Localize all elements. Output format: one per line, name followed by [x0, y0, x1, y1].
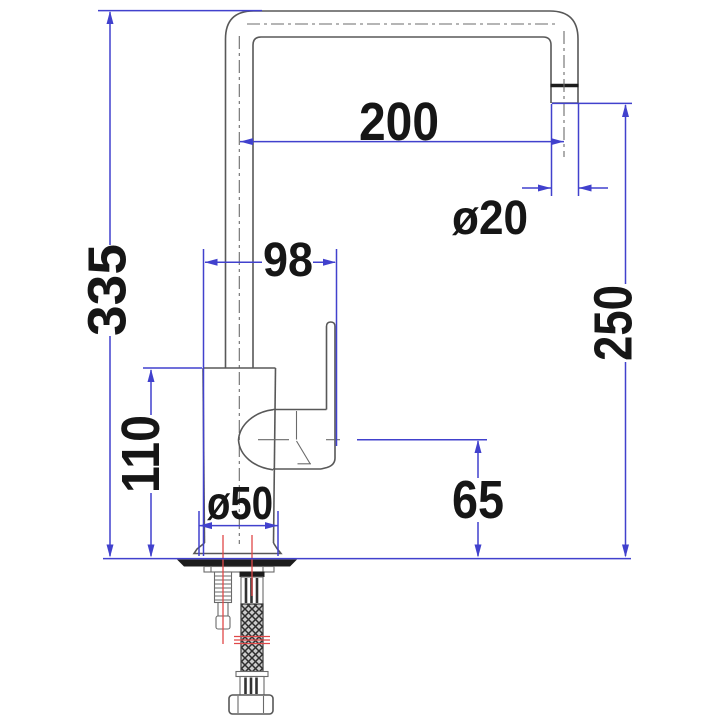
base-flare: [194, 543, 281, 554]
dim-110-label: 110: [111, 415, 171, 493]
dim-200-label: 200: [359, 92, 439, 152]
dimension-outlet-height: 250: [552, 103, 643, 557]
dim-o20-label: ø20: [452, 192, 528, 245]
dimension-outlet-diameter: ø20: [452, 104, 608, 245]
mounting-flange: [204, 567, 274, 573]
dimension-spout-reach: 200: [240, 92, 564, 152]
dim-335-label: 335: [77, 244, 137, 336]
drawing-canvas: 335 110 98 200 ø20 250: [0, 0, 720, 720]
dim-98-label: 98: [263, 234, 313, 287]
escutcheon-plate: [177, 560, 297, 567]
hose-braid: [241, 604, 263, 672]
flex-hose: [229, 572, 273, 715]
handle-lever: [327, 322, 336, 410]
spout-tube: [226, 11, 579, 368]
faucet-technical-drawing: 335 110 98 200 ø20 250: [0, 0, 720, 720]
dim-65-label: 65: [452, 470, 504, 530]
mixer-head: [239, 410, 341, 470]
dimension-head-clearance: 65: [357, 440, 504, 558]
dimension-base-diameter: ø50: [199, 477, 278, 556]
dim-o50-label: ø50: [207, 477, 273, 529]
dimension-body-height: 110: [111, 368, 202, 558]
dim-250-label: 250: [583, 285, 643, 361]
hose-end-nut: [229, 695, 273, 714]
